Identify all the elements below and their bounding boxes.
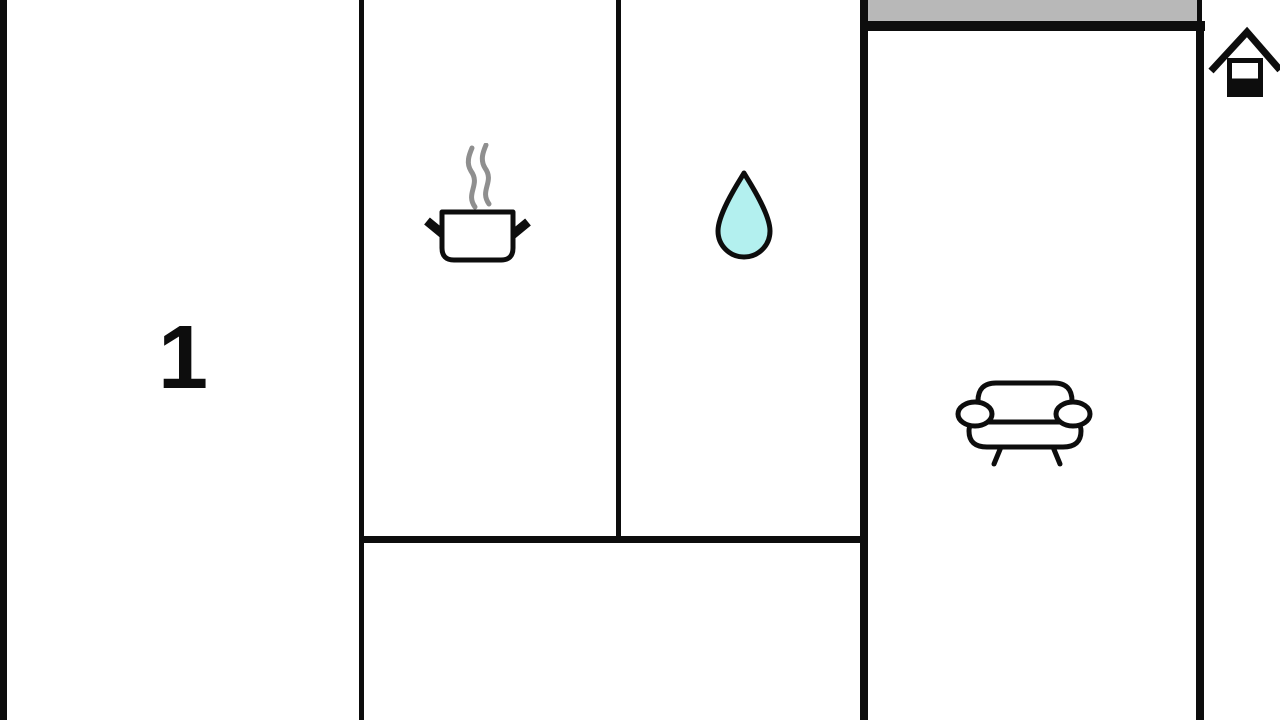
wall-kitchen-bottom xyxy=(359,536,865,543)
terrace-right-edge xyxy=(1197,0,1202,22)
wall-left-edge xyxy=(0,0,7,720)
house-logo xyxy=(1203,25,1280,103)
cooking-pot-icon xyxy=(418,143,538,268)
wall-room1-right xyxy=(359,0,364,720)
room-1-label: 1 xyxy=(147,313,219,405)
terrace-area xyxy=(868,0,1197,22)
floor-plan: 1 xyxy=(0,0,1280,720)
sofa-icon xyxy=(953,373,1095,468)
wall-kitchen-bathroom xyxy=(616,0,621,541)
wall-livingroom-right xyxy=(1196,21,1204,720)
wall-livingroom-left xyxy=(860,0,868,720)
wall-livingroom-top xyxy=(860,21,1205,31)
water-drop-icon xyxy=(712,168,776,264)
